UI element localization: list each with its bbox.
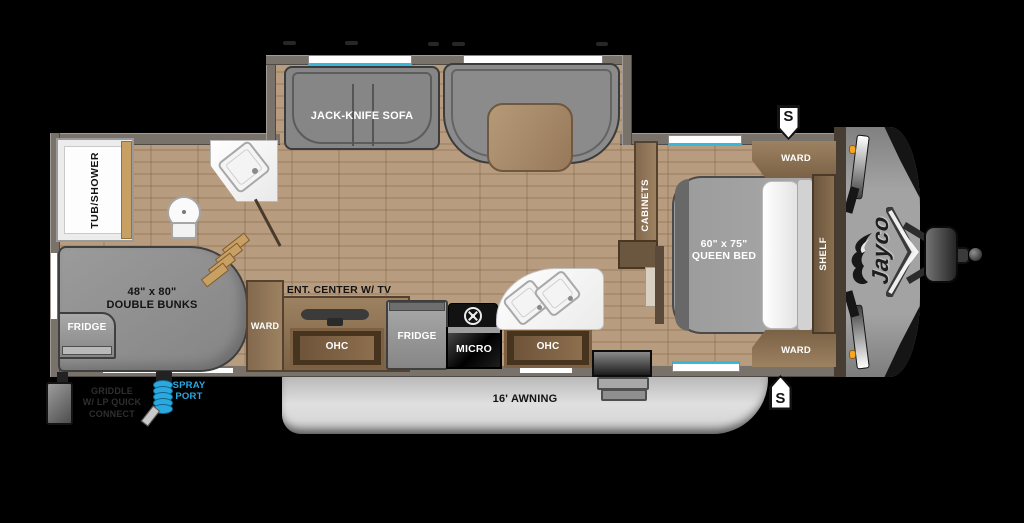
speaker-marker-bottom: S [769,375,792,410]
kitchen-fridge-top [389,302,445,311]
ward-top-label: WARD [756,153,836,164]
bunks-label: 48" x 80" DOUBLE BUNKS [78,286,226,312]
marker-light [849,350,856,359]
kitchen-faucet [537,305,542,310]
window-sofa [308,55,412,66]
queen-bed-type: QUEEN BED [692,250,756,262]
spray-label-line1: SPRAY [173,380,206,391]
griddle-label-line2: W/ LP QUICK [83,397,142,407]
cap-black-slash [846,186,859,213]
sofa-label: JACK-KNIFE SOFA [284,110,440,123]
bed-bolster [797,179,813,331]
clearance-dash [283,41,296,45]
bunk-fridge-label: FRIDGE [58,322,116,334]
bath-faucet [252,168,258,174]
spray-label-line2: PORT [175,391,202,402]
speaker-marker-letter: S [777,108,800,126]
slideout-wall-left [266,55,276,145]
bunks-type: DOUBLE BUNKS [106,299,197,311]
griddle-label: GRIDDLE W/ LP QUICK CONNECT [76,386,148,420]
kitchen-ward-label: WARD [251,321,279,332]
speaker-marker-top: S [777,105,800,140]
front-cap: Jayco [846,127,920,377]
clearance-dash [596,42,608,46]
clearance-dash [345,41,358,45]
jayco-logo: Jayco [867,214,894,286]
burner-icon [464,307,482,325]
bedroom-divider [655,246,664,324]
bunks-size: 48" x 80" [128,286,177,298]
slideout-wall-right [622,55,632,145]
entry-step [601,389,647,401]
hitch-ball [968,247,983,262]
griddle-label-line3: CONNECT [89,409,135,419]
kitchen-faucet [568,296,573,301]
cabinets-label: CABINETS [640,179,651,232]
marker-light [849,145,856,154]
microwave-label: MICRO [446,343,502,355]
awning-label: 16' AWNING [282,393,768,406]
toilet-flush-dot [182,210,186,214]
tub-shower-label: TUB/SHOWER [89,152,101,229]
spray-port-label: SPRAY PORT [166,380,212,402]
propane-cover [924,226,958,283]
toilet-base [171,222,197,239]
cabinet-extension [618,240,658,269]
tub-trim [121,141,132,239]
ward-bottom-label: WARD [756,345,836,356]
griddle [46,382,73,425]
bunk-fridge-door [62,346,112,355]
ohc-left-label: OHC [290,341,384,353]
jayco-logo-wrap: Jayco [848,220,912,280]
window-bedroom-top [668,135,742,146]
bedroom-shelf: SHELF [812,174,836,334]
ohc-right-label: OHC [504,341,592,353]
window-kitchen-strip [520,368,572,373]
window-bedroom-bottom [672,361,740,372]
shelf-label: SHELF [818,237,829,271]
dinette-table [487,103,573,172]
queen-bed-size: 60" x 75" [701,238,748,250]
ent-center-label: ENT. CENTER W/ TV [278,284,400,296]
microwave-top-strip [448,327,500,333]
sofa-cushion-outline [292,72,432,144]
tv-stand [327,318,343,326]
kitchen-fridge-label: FRIDGE [386,331,448,343]
cap-black-accent [870,127,920,209]
clearance-dash [452,42,465,46]
window-left-strip [51,253,57,319]
entry-step-platform [592,350,652,377]
floorplan-canvas: 16' AWNING TUB/SHOWER 48" x 80" DOUBLE B… [0,0,1024,523]
clearance-dash [428,42,439,46]
griddle-label-line1: GRIDDLE [91,386,133,396]
cap-black-accent [870,295,920,377]
queen-bed-label: 60" x 75" QUEEN BED [676,238,772,263]
speaker-marker-letter: S [769,390,792,408]
